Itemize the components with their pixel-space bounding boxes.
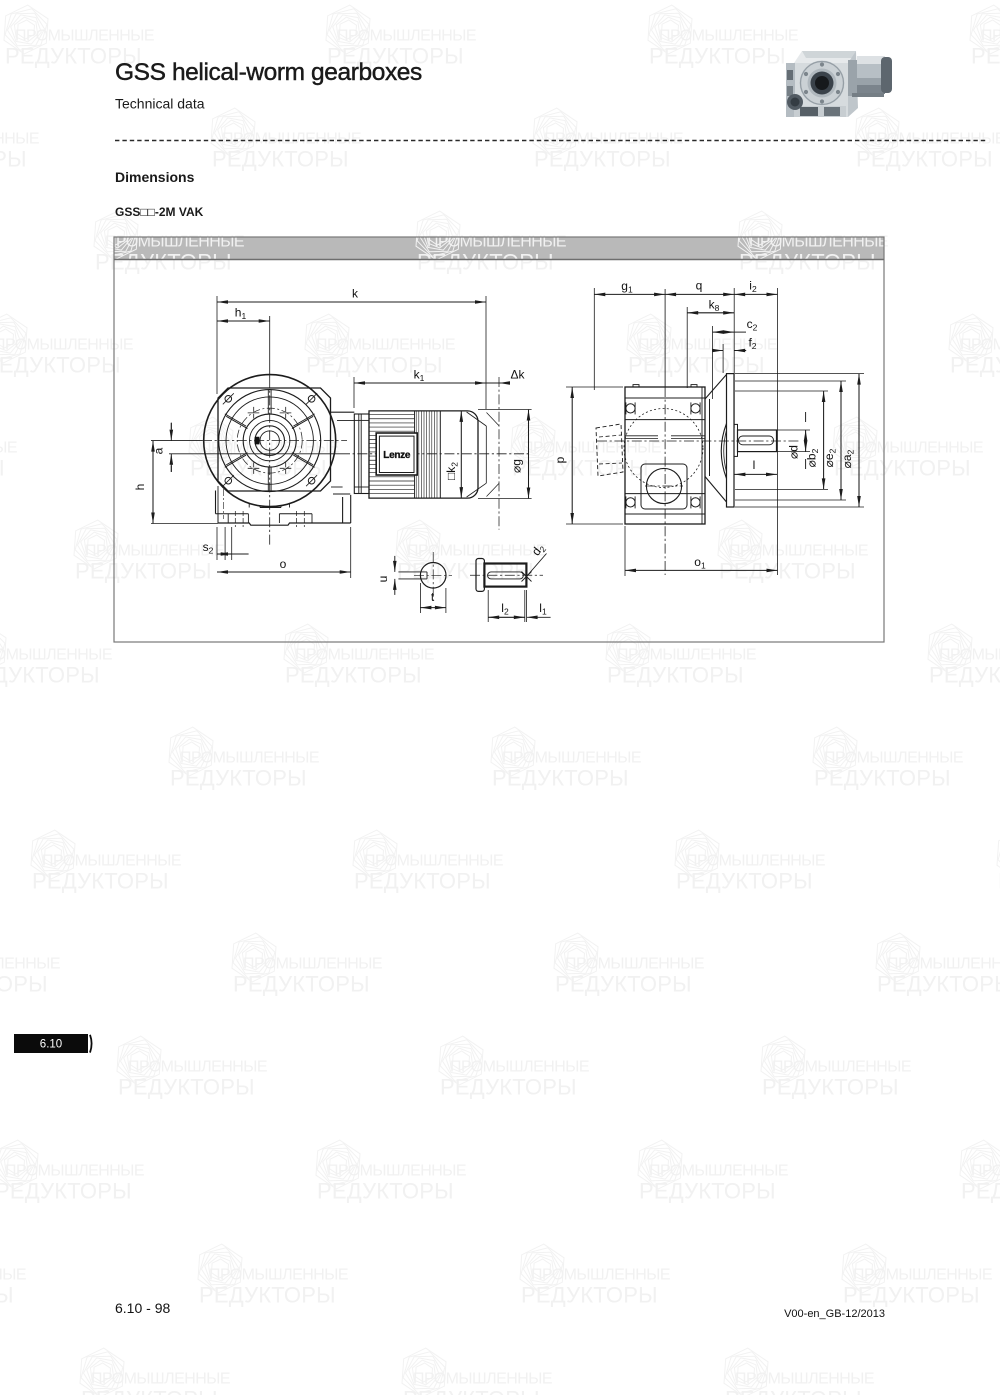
svg-text:⌀g: ⌀g	[510, 459, 524, 473]
svg-text:a: a	[152, 447, 166, 454]
svg-text:p: p	[553, 456, 567, 463]
svg-text:V00-en_GB-12/2013: V00-en_GB-12/2013	[784, 1308, 885, 1320]
svg-text:u: u	[376, 576, 390, 583]
svg-text:k: k	[352, 287, 359, 301]
svg-text:Dimensions: Dimensions	[115, 169, 195, 185]
svg-text:Lenze: Lenze	[383, 450, 411, 461]
svg-text:q: q	[696, 279, 703, 293]
svg-text:GSS helical-worm gearboxes: GSS helical-worm gearboxes	[115, 59, 422, 86]
svg-text:GSS□□-2M VAK: GSS□□-2M VAK	[115, 205, 204, 219]
svg-text:6.10: 6.10	[40, 1039, 62, 1051]
svg-text:6.10 - 98: 6.10 - 98	[115, 1300, 170, 1316]
svg-text:Technical data: Technical data	[115, 96, 205, 112]
svg-text:o: o	[280, 557, 287, 571]
svg-text:⌀d: ⌀d	[787, 445, 801, 459]
svg-text:l: l	[753, 458, 756, 472]
svg-text:h: h	[133, 484, 147, 491]
svg-text:Δk: Δk	[510, 368, 525, 382]
